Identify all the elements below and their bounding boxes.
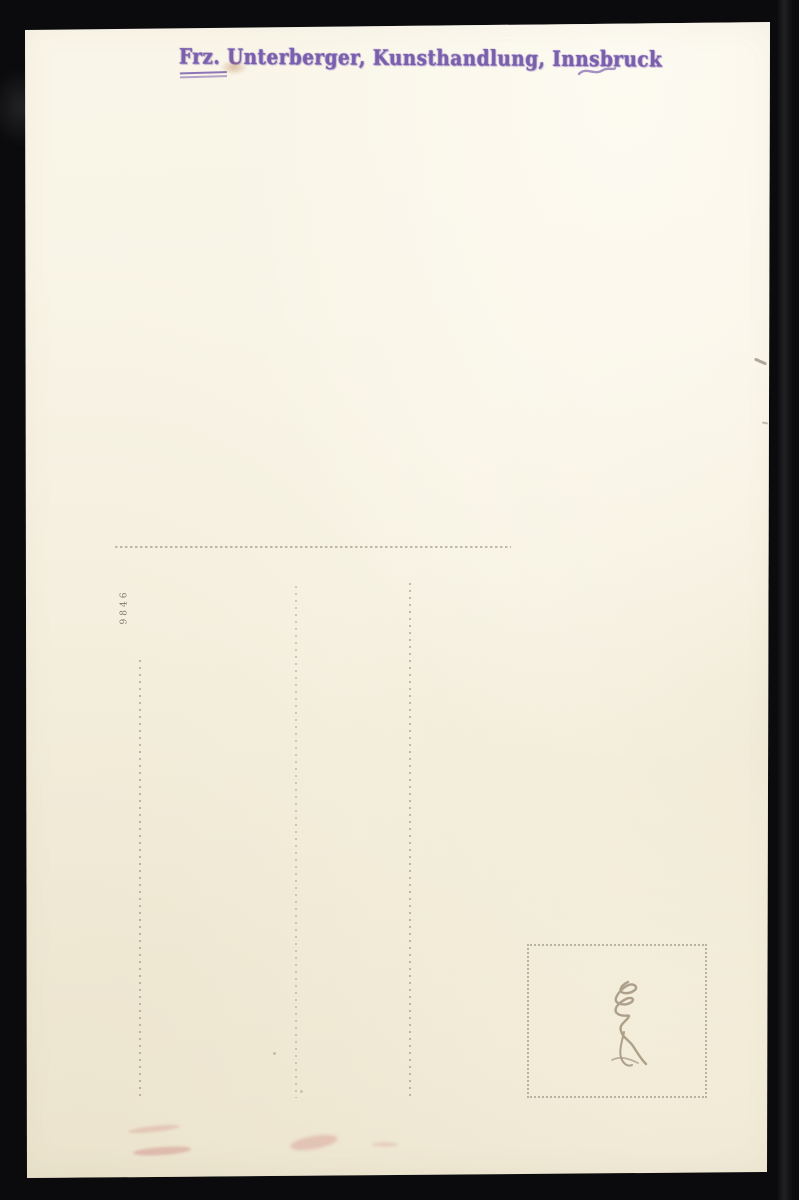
dust-speck <box>754 357 767 365</box>
address-divider-dotted-line <box>115 546 511 548</box>
dust-speck <box>300 1090 303 1093</box>
dust-speck <box>273 1052 276 1055</box>
dust-speck <box>762 421 768 424</box>
serial-number: 9846 <box>110 576 138 638</box>
red-smudge <box>133 1145 191 1157</box>
pencil-scribble <box>594 976 666 1076</box>
red-smudge <box>289 1132 339 1153</box>
stamp-flourish-swash <box>577 63 617 79</box>
writing-column-line-middle <box>295 586 297 1098</box>
publisher-ink-stamp: Frz. Unterberger, Kunsthandlung, Innsbru… <box>179 44 639 83</box>
writing-column-line-left <box>139 660 141 1100</box>
red-smudge <box>372 1142 398 1147</box>
backdrop-seam <box>777 0 793 1200</box>
ink-blotch <box>220 60 248 75</box>
postcard-back: Frz. Unterberger, Kunsthandlung, Innsbru… <box>0 0 799 1200</box>
red-smudge <box>128 1123 180 1134</box>
writing-column-line-right <box>409 583 411 1100</box>
stamp-underline-mark <box>180 71 227 79</box>
serial-number-text: 9846 <box>119 590 129 625</box>
